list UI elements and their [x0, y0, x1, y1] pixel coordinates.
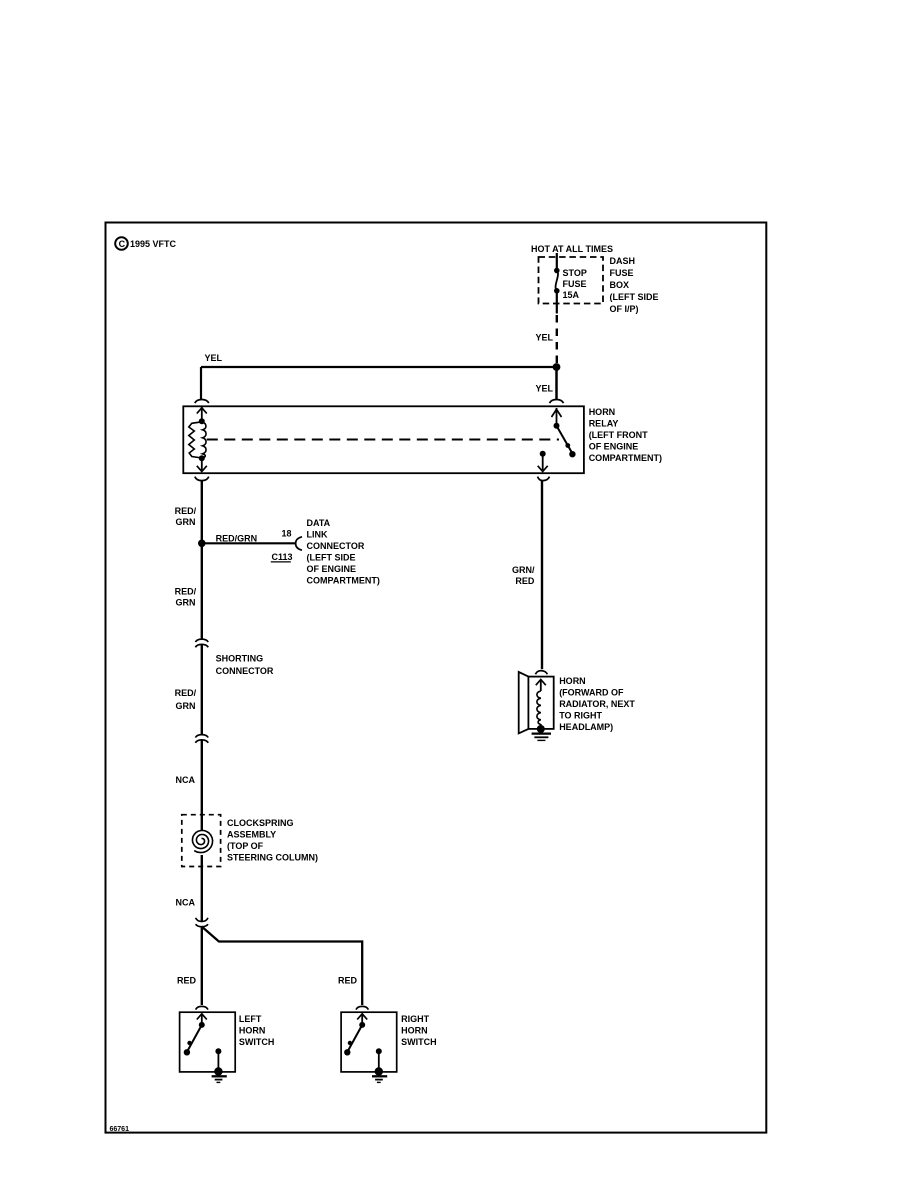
svg-text:C: C [119, 239, 126, 249]
svg-text:LINK: LINK [307, 530, 328, 540]
svg-text:ASSEMBLY: ASSEMBLY [227, 830, 276, 840]
svg-text:STEERING COLUMN): STEERING COLUMN) [227, 853, 318, 863]
svg-text:STOP: STOP [563, 268, 587, 278]
svg-text:RED/GRN: RED/GRN [216, 533, 258, 543]
svg-text:RED: RED [338, 976, 358, 986]
svg-text:CONNECTOR: CONNECTOR [216, 666, 274, 676]
svg-text:(LEFT SIDE: (LEFT SIDE [307, 553, 356, 563]
svg-text:CLOCKSPRING: CLOCKSPRING [227, 818, 294, 828]
svg-text:15A: 15A [563, 290, 580, 300]
svg-text:SHORTING: SHORTING [216, 653, 264, 663]
svg-text:OF ENGINE: OF ENGINE [589, 442, 639, 452]
svg-text:RIGHT: RIGHT [401, 1014, 430, 1024]
svg-text:1995 VFTC: 1995 VFTC [130, 239, 177, 249]
svg-text:NCA: NCA [176, 898, 196, 908]
svg-text:RELAY: RELAY [589, 419, 619, 429]
svg-text:TO RIGHT: TO RIGHT [559, 711, 602, 721]
svg-text:YEL: YEL [536, 384, 554, 394]
svg-text:DATA: DATA [307, 518, 331, 528]
svg-text:GRN: GRN [176, 517, 196, 527]
svg-text:LEFT: LEFT [239, 1014, 262, 1024]
svg-text:CONNECTOR: CONNECTOR [307, 541, 365, 551]
svg-text:RADIATOR, NEXT: RADIATOR, NEXT [559, 699, 635, 709]
svg-text:HORN: HORN [589, 407, 616, 417]
svg-text:SWITCH: SWITCH [401, 1037, 437, 1047]
svg-text:OF ENGINE: OF ENGINE [307, 564, 357, 574]
svg-text:(LEFT FRONT: (LEFT FRONT [589, 430, 648, 440]
svg-text:DASH: DASH [610, 256, 636, 266]
svg-text:66761: 66761 [110, 1126, 130, 1133]
svg-text:RED/: RED/ [175, 586, 197, 596]
svg-text:RED: RED [515, 576, 535, 586]
svg-text:HORN: HORN [239, 1026, 266, 1036]
svg-text:(LEFT SIDE: (LEFT SIDE [610, 292, 659, 302]
svg-text:COMPARTMENT): COMPARTMENT) [307, 576, 380, 586]
svg-text:HOT AT ALL TIMES: HOT AT ALL TIMES [531, 244, 613, 254]
svg-text:GRN/: GRN/ [512, 565, 535, 575]
svg-text:NCA: NCA [176, 775, 196, 785]
svg-text:SWITCH: SWITCH [239, 1037, 275, 1047]
svg-text:YEL: YEL [205, 353, 223, 363]
svg-text:RED/: RED/ [175, 688, 197, 698]
svg-text:GRN: GRN [176, 598, 196, 608]
svg-text:HORN: HORN [401, 1026, 428, 1036]
svg-text:YEL: YEL [536, 333, 554, 343]
svg-text:COMPARTMENT): COMPARTMENT) [589, 453, 662, 463]
svg-text:BOX: BOX [610, 280, 630, 290]
svg-text:FUSE: FUSE [610, 268, 634, 278]
svg-text:(FORWARD OF: (FORWARD OF [559, 688, 624, 698]
svg-text:HORN: HORN [559, 676, 586, 686]
svg-text:(TOP OF: (TOP OF [227, 841, 264, 851]
svg-text:RED/: RED/ [175, 506, 197, 516]
svg-text:18: 18 [282, 529, 292, 539]
svg-text:OF I/P): OF I/P) [610, 304, 639, 314]
svg-text:C113: C113 [272, 552, 293, 562]
svg-text:GRN: GRN [176, 701, 196, 711]
svg-text:RED: RED [177, 976, 197, 986]
svg-text:FUSE: FUSE [563, 279, 587, 289]
svg-text:HEADLAMP): HEADLAMP) [559, 722, 613, 732]
